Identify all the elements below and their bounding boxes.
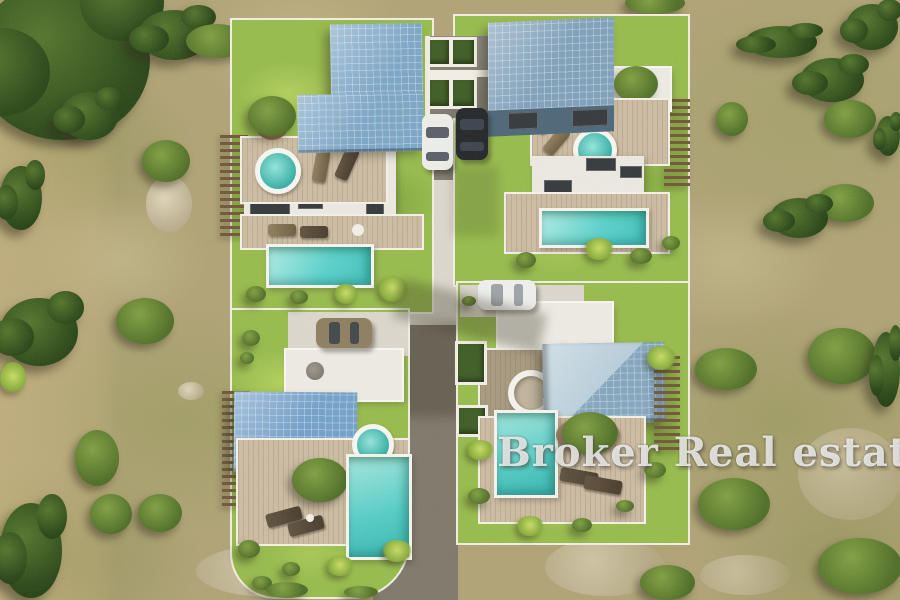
car-black (456, 108, 488, 160)
villa-topright-roof (488, 17, 614, 137)
entry-wall (425, 36, 430, 118)
shrub (344, 586, 378, 598)
shrub (695, 348, 757, 390)
roof-tiles (297, 93, 424, 153)
hedge-box (453, 40, 474, 64)
fire-pit (306, 362, 324, 380)
shrub (698, 478, 770, 530)
watermark-text: Broker Real estate (497, 429, 900, 476)
car-bronze (316, 318, 372, 348)
potted-tree (614, 66, 658, 102)
olive-tree (872, 332, 900, 407)
window (586, 158, 616, 171)
sun-lounger (268, 224, 296, 236)
shrub (516, 252, 536, 268)
roof-window (508, 112, 538, 130)
sun-lounger (300, 226, 328, 238)
olive-tree (0, 298, 78, 366)
shrub (290, 290, 308, 304)
shrub (242, 330, 260, 346)
shrub (662, 236, 680, 250)
window (250, 200, 290, 215)
shrub (640, 565, 695, 600)
roof-tiles (488, 17, 614, 111)
rock (178, 382, 204, 400)
shrub (716, 102, 748, 136)
palm-shrub (584, 238, 614, 260)
shrub (246, 286, 266, 302)
hedge (458, 344, 484, 382)
window (620, 166, 642, 178)
shrub (818, 538, 900, 594)
hot-tub (255, 148, 301, 194)
planter-tree (292, 458, 348, 502)
roof-window (572, 109, 608, 128)
window (544, 180, 572, 194)
shrub (808, 328, 876, 384)
shrub (266, 582, 308, 598)
palm-shrub (334, 284, 358, 304)
palm-shrub (466, 440, 494, 460)
figure (306, 514, 314, 522)
hedge-box (453, 80, 474, 106)
hedge-box (429, 80, 449, 106)
swimming-pool (266, 244, 374, 288)
car-white (422, 114, 453, 170)
shrub (282, 562, 300, 576)
parasol (352, 224, 364, 236)
olive-tree (876, 116, 900, 156)
aerial-villa-render: Broker Real estate (0, 0, 900, 600)
palm-shrub (0, 362, 26, 394)
olive-tree (745, 26, 817, 58)
olive-tree (60, 92, 118, 140)
villa-topleft-roof (296, 23, 424, 153)
olive-tree (846, 4, 898, 50)
entry-wall (425, 70, 497, 77)
shrub (240, 352, 254, 364)
shrub (630, 248, 652, 264)
palm-shrub (326, 556, 354, 576)
palm-shrub (516, 516, 544, 536)
olive-tree (0, 166, 42, 230)
shrub (468, 488, 490, 504)
olive-tree (770, 198, 828, 238)
shrub (238, 540, 260, 558)
potted-tree (248, 96, 296, 136)
shrub (824, 100, 876, 138)
rock (146, 176, 192, 232)
hedge-box (429, 40, 449, 64)
shrub (142, 140, 190, 182)
shrub (616, 500, 634, 512)
olive-tree (800, 58, 864, 102)
shrub (138, 494, 182, 532)
shrub (75, 430, 119, 486)
rock-outcrop (700, 555, 790, 595)
palm-shrub (646, 346, 676, 370)
shrub (572, 518, 592, 532)
palm-shrub (382, 540, 412, 562)
building-shadow (452, 166, 498, 236)
shrub (90, 494, 132, 534)
shrub (116, 298, 174, 344)
olive-tree (0, 503, 62, 598)
